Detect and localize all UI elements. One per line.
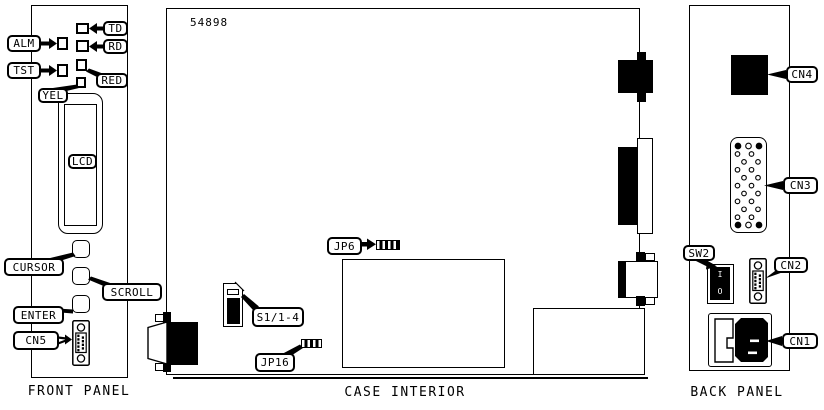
s1-label: S1/1-4 bbox=[252, 307, 304, 327]
tst-label: TST bbox=[7, 62, 41, 79]
alm-label: ALM bbox=[7, 35, 41, 52]
cn1-label: CN1 bbox=[782, 333, 818, 349]
cursor-label: CURSOR bbox=[4, 258, 64, 276]
hardware-panel-diagram: 54898 I O bbox=[0, 0, 824, 410]
case-db-connector-shell bbox=[148, 322, 167, 364]
cn1-power-inlet-icon bbox=[715, 318, 768, 362]
cn4-label: CN4 bbox=[786, 66, 818, 83]
jp16-label: JP16 bbox=[255, 353, 295, 372]
sw2-label: SW2 bbox=[683, 245, 715, 261]
cn3-pin-grid bbox=[735, 143, 762, 228]
enter-label: ENTER bbox=[13, 306, 64, 324]
jp6-label: JP6 bbox=[327, 237, 362, 255]
dip-switch-corner-fold bbox=[235, 282, 245, 292]
cn2-connector-icon bbox=[750, 259, 766, 303]
cn2-label: CN2 bbox=[774, 257, 808, 273]
cn3-label: CN3 bbox=[783, 177, 818, 194]
scroll-label: SCROLL bbox=[102, 283, 162, 301]
cn5-connector-icon bbox=[73, 321, 89, 365]
cn5-label: CN5 bbox=[13, 331, 59, 350]
rd-label: RD bbox=[103, 39, 128, 54]
lcd-label: LCD bbox=[68, 154, 97, 169]
yel-label: YEL bbox=[38, 88, 68, 103]
td-label: TD bbox=[103, 21, 128, 36]
diagram-annotations bbox=[0, 0, 824, 410]
callout-leaders bbox=[34, 23, 786, 357]
red-label: RED bbox=[96, 73, 128, 88]
